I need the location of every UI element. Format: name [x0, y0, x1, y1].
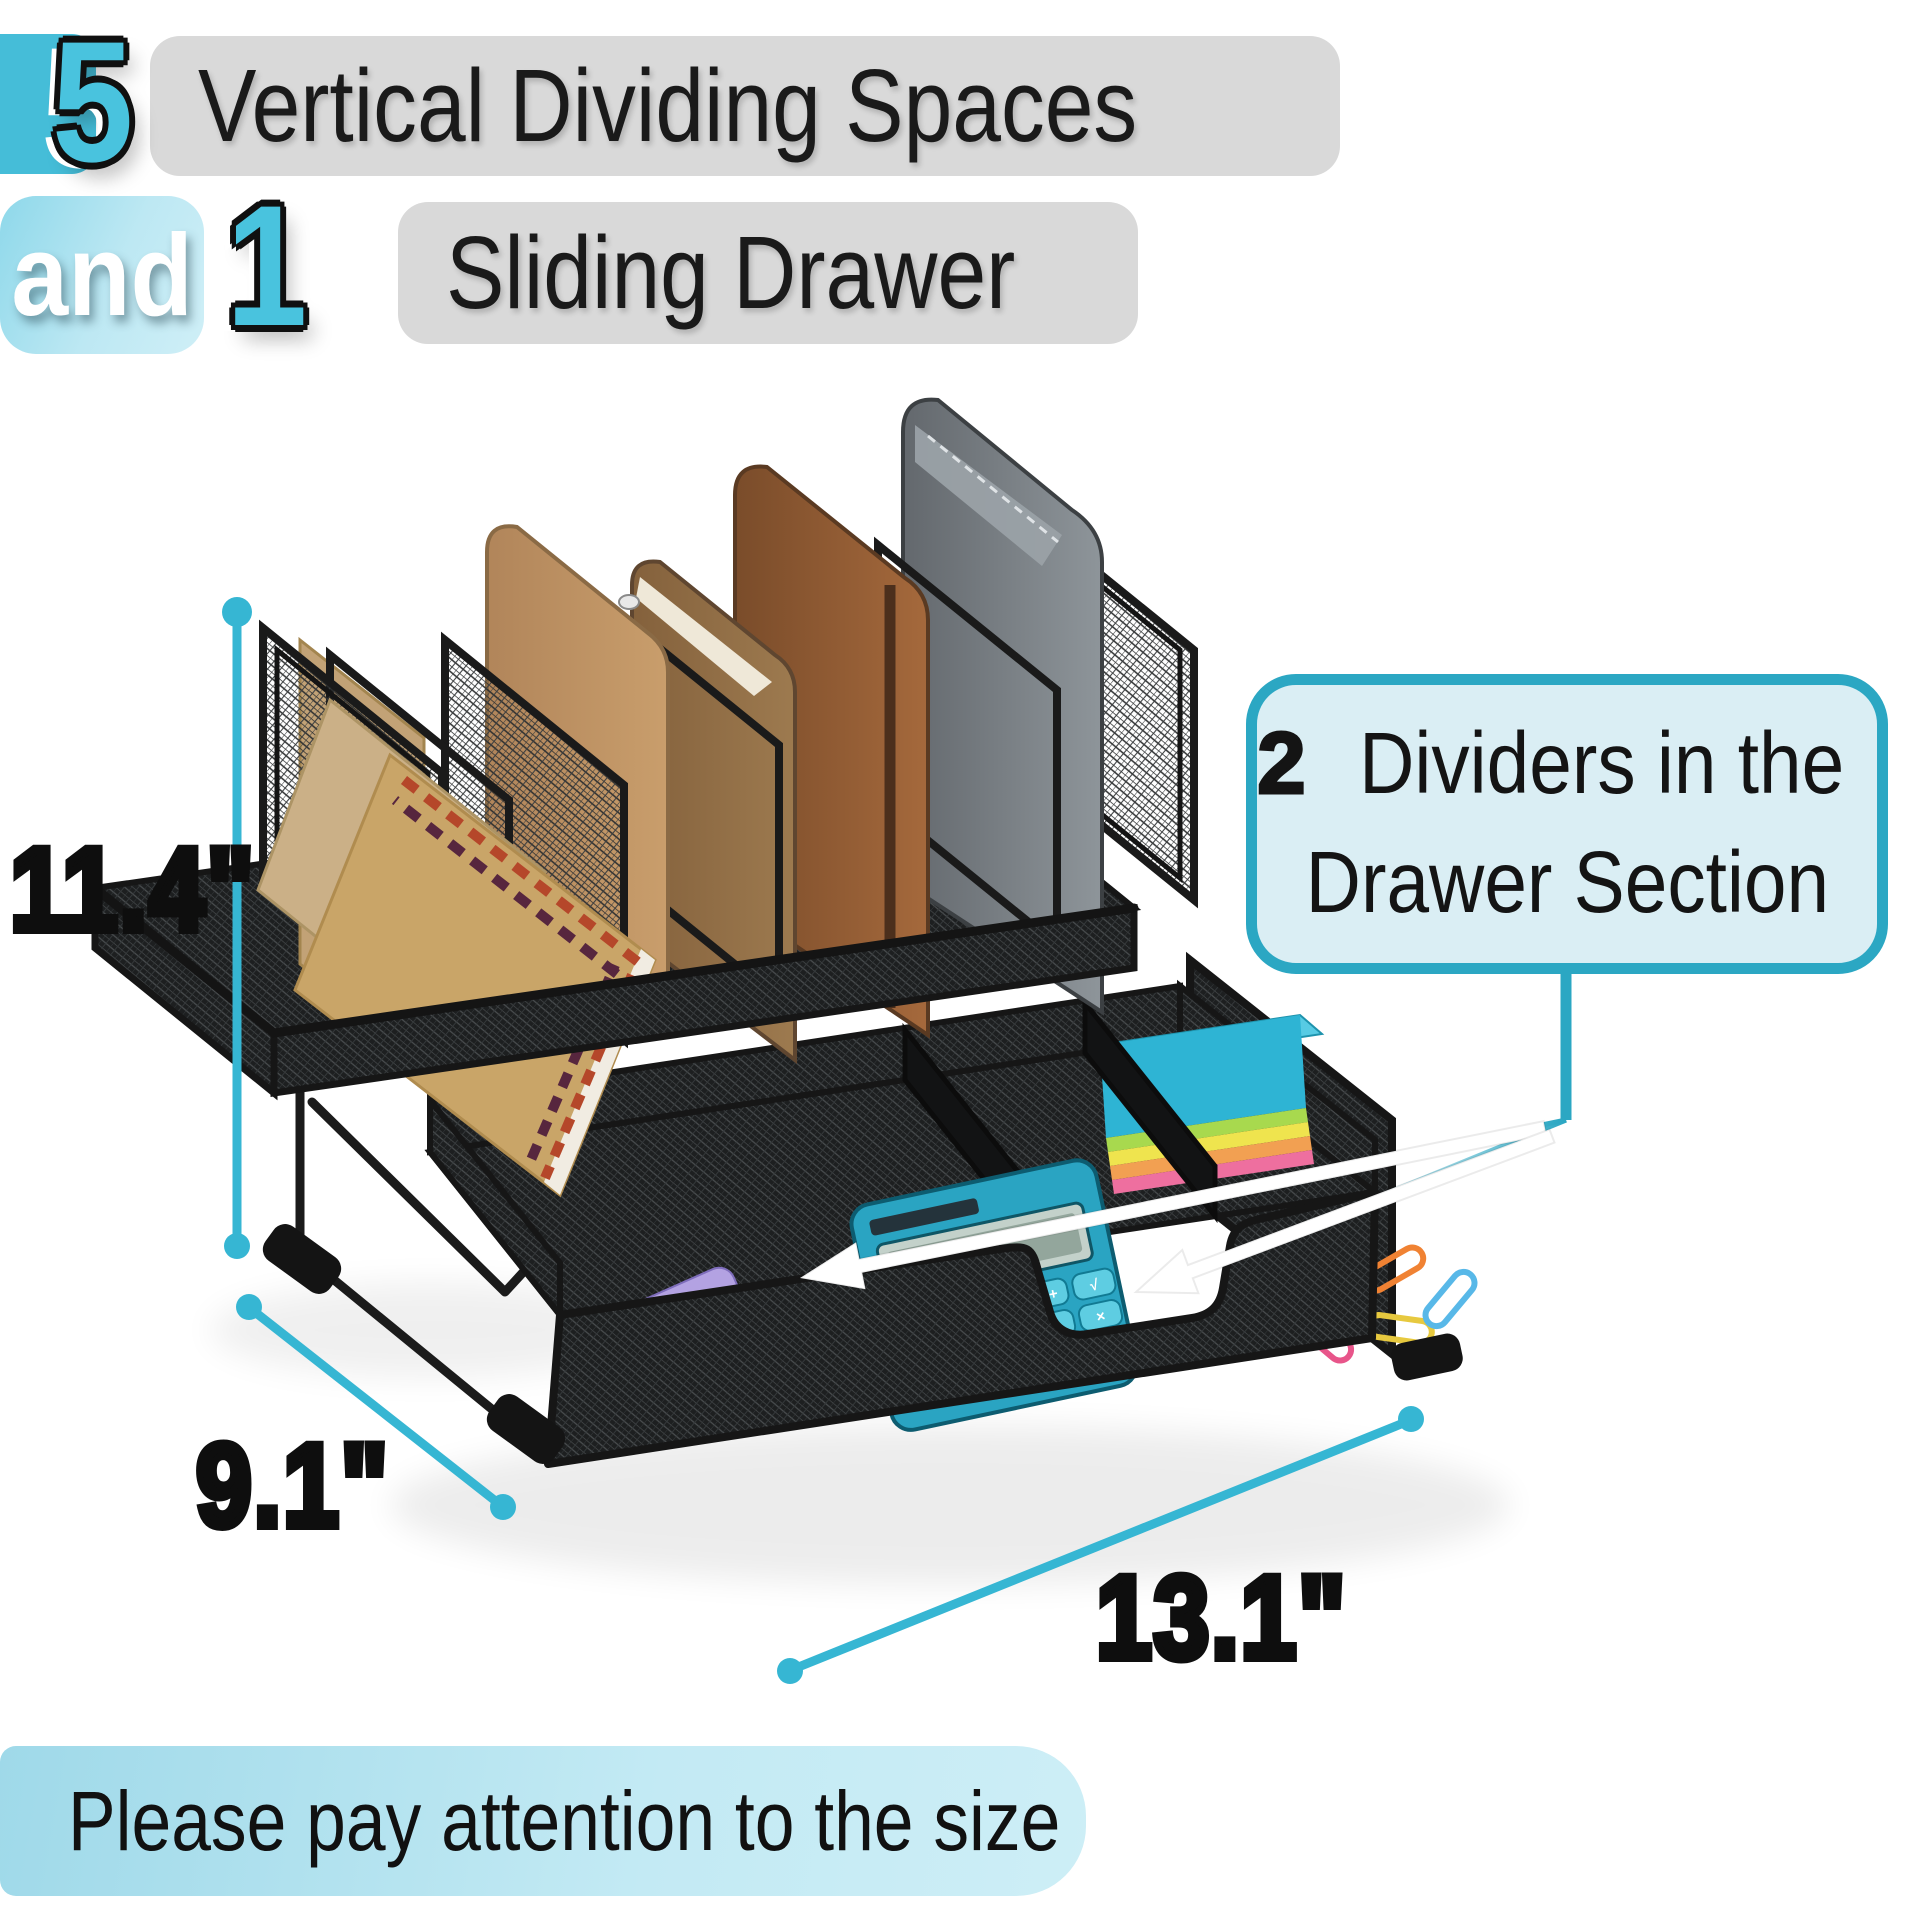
product-infographic: MR M- M+ √ ▶	[0, 0, 1920, 1920]
width-dimension-label: 13.1"	[1096, 1550, 1392, 1686]
callout-line-1: 2 Dividers in the	[1257, 710, 1877, 819]
callout-text-2: Drawer Section	[1305, 829, 1828, 938]
height-dimension-label: 11.4"	[10, 822, 299, 958]
count-vertical-text: 5	[52, 16, 133, 188]
count-drawer-text: 1	[226, 180, 307, 352]
callout-number: 2	[1257, 710, 1305, 819]
callout-line-2: Drawer Section	[1270, 829, 1865, 938]
size-attention-banner: Please pay attention to the size	[0, 1746, 1086, 1896]
size-attention-text: Please pay attention to the size	[68, 1773, 1060, 1870]
count-sliding-drawer: 1	[226, 180, 322, 352]
drawer-dividers-callout: 2 Dividers in the Drawer Section	[1246, 674, 1888, 974]
callout-text-1: Dividers in the	[1359, 710, 1844, 819]
depth-dimension-label: 9.1"	[196, 1418, 424, 1554]
and-label: and	[11, 208, 192, 342]
count-vertical-spaces: 5	[52, 16, 148, 188]
and-badge: and	[0, 196, 204, 354]
